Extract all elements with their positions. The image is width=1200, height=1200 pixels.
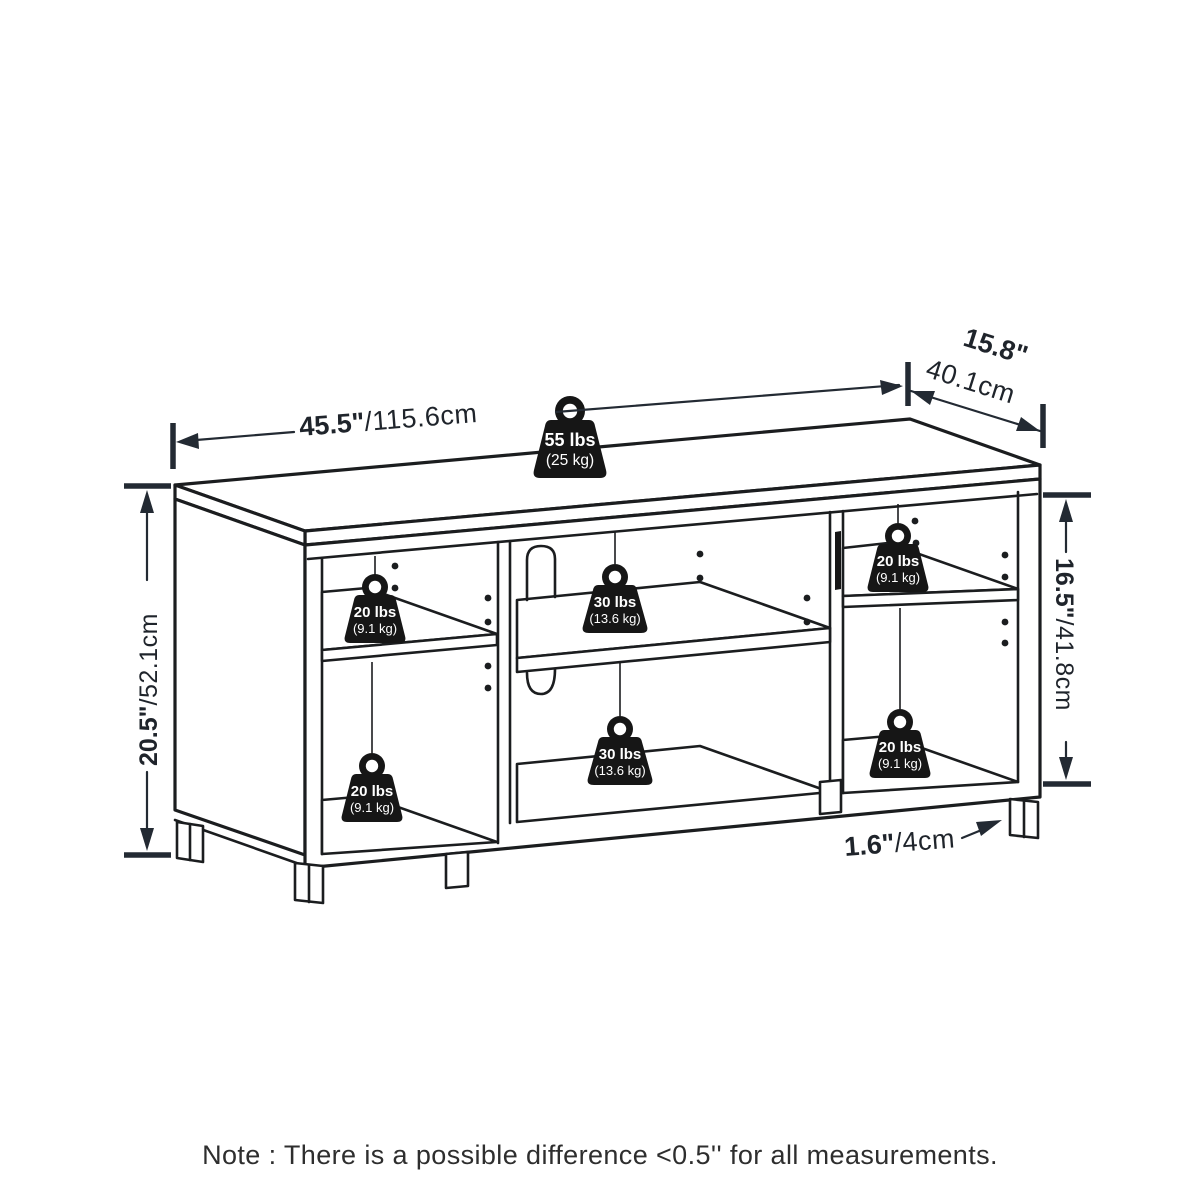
- pin-hole: [912, 518, 919, 525]
- depth-dimension-label-in: 15.8": [960, 322, 1031, 370]
- weight-handle-hole: [614, 723, 626, 735]
- pin-hole: [392, 585, 399, 592]
- interior-height-dimension: 16.5"/41.8cm: [1043, 495, 1091, 784]
- arrow-down-icon: [140, 828, 154, 851]
- pin-hole: [485, 685, 492, 692]
- pin-hole: [1002, 552, 1009, 559]
- pin-hole: [804, 619, 811, 626]
- weight-kg-label: (25 kg): [546, 452, 594, 469]
- pin-hole: [1002, 574, 1009, 581]
- weight-kg-label: (9.1 kg): [878, 756, 922, 771]
- pin-hole: [697, 575, 704, 582]
- middle-leg: [446, 852, 468, 888]
- arrow-up-icon: [1059, 499, 1073, 522]
- leg-height-dimension-label: 1.6"/4cm: [843, 823, 956, 862]
- weight-lbs-label: 30 lbs: [599, 746, 642, 763]
- weight-handle-hole: [894, 716, 906, 728]
- pin-hole: [1002, 640, 1009, 647]
- arrow-right-icon: [880, 380, 903, 395]
- leg-height-dimension: 1.6"/4cm: [843, 820, 1002, 862]
- dimension-line: [556, 385, 899, 412]
- weight-kg-label: (13.6 kg): [594, 763, 645, 778]
- interior-height-dimension-label: 16.5"/41.8cm: [1050, 558, 1078, 711]
- weight-handle-hole: [892, 530, 904, 542]
- weight-kg-label: (9.1 kg): [353, 621, 397, 636]
- arrow-downright-icon: [1016, 417, 1040, 431]
- weight-kg-label: (9.1 kg): [350, 800, 394, 815]
- pin-hole: [392, 563, 399, 570]
- arrow-upleft-icon: [911, 391, 935, 405]
- measurement-note: Note : There is a possible difference <0…: [202, 1140, 998, 1170]
- weight-handle-hole: [369, 581, 381, 593]
- width-dimension-label: 45.5"/115.6cm: [298, 398, 478, 442]
- pin-hole: [1002, 619, 1009, 626]
- weight-kg-label: (9.1 kg): [876, 570, 920, 585]
- pin-hole: [804, 595, 811, 602]
- back-middle-leg: [820, 780, 841, 814]
- weight-lbs-label: 20 lbs: [354, 604, 397, 621]
- pin-hole: [485, 595, 492, 602]
- front-frame: [305, 479, 1040, 868]
- arrow-up-icon: [140, 490, 154, 513]
- height-dimension-label: 20.5"/52.1cm: [135, 613, 163, 766]
- dimension-line: [184, 432, 294, 441]
- left-side-panel: [175, 499, 305, 855]
- weight-handle-hole: [366, 760, 378, 772]
- pin-hole: [697, 551, 704, 558]
- weight-lbs-label: 20 lbs: [877, 553, 920, 570]
- pin-hole: [485, 619, 492, 626]
- arrow-left-icon: [176, 433, 199, 449]
- weight-lbs-label: 30 lbs: [594, 594, 637, 611]
- pin-hole: [485, 663, 492, 670]
- weight-lbs-label: 20 lbs: [879, 739, 922, 756]
- weight-lbs-label: 55 lbs: [544, 430, 595, 450]
- weight-lbs-label: 20 lbs: [351, 783, 394, 800]
- weight-kg-label: (13.6 kg): [589, 611, 640, 626]
- furniture-dimension-diagram: 55 lbs (25 kg) 20 lbs (9.1 kg) 20 lbs (9…: [0, 0, 1200, 1200]
- cable-slot: [835, 531, 841, 590]
- arrow-icon: [976, 820, 1002, 836]
- height-dimension: 20.5"/52.1cm: [124, 486, 171, 855]
- arrow-down-icon: [1059, 757, 1073, 780]
- weight-handle-hole: [609, 571, 621, 583]
